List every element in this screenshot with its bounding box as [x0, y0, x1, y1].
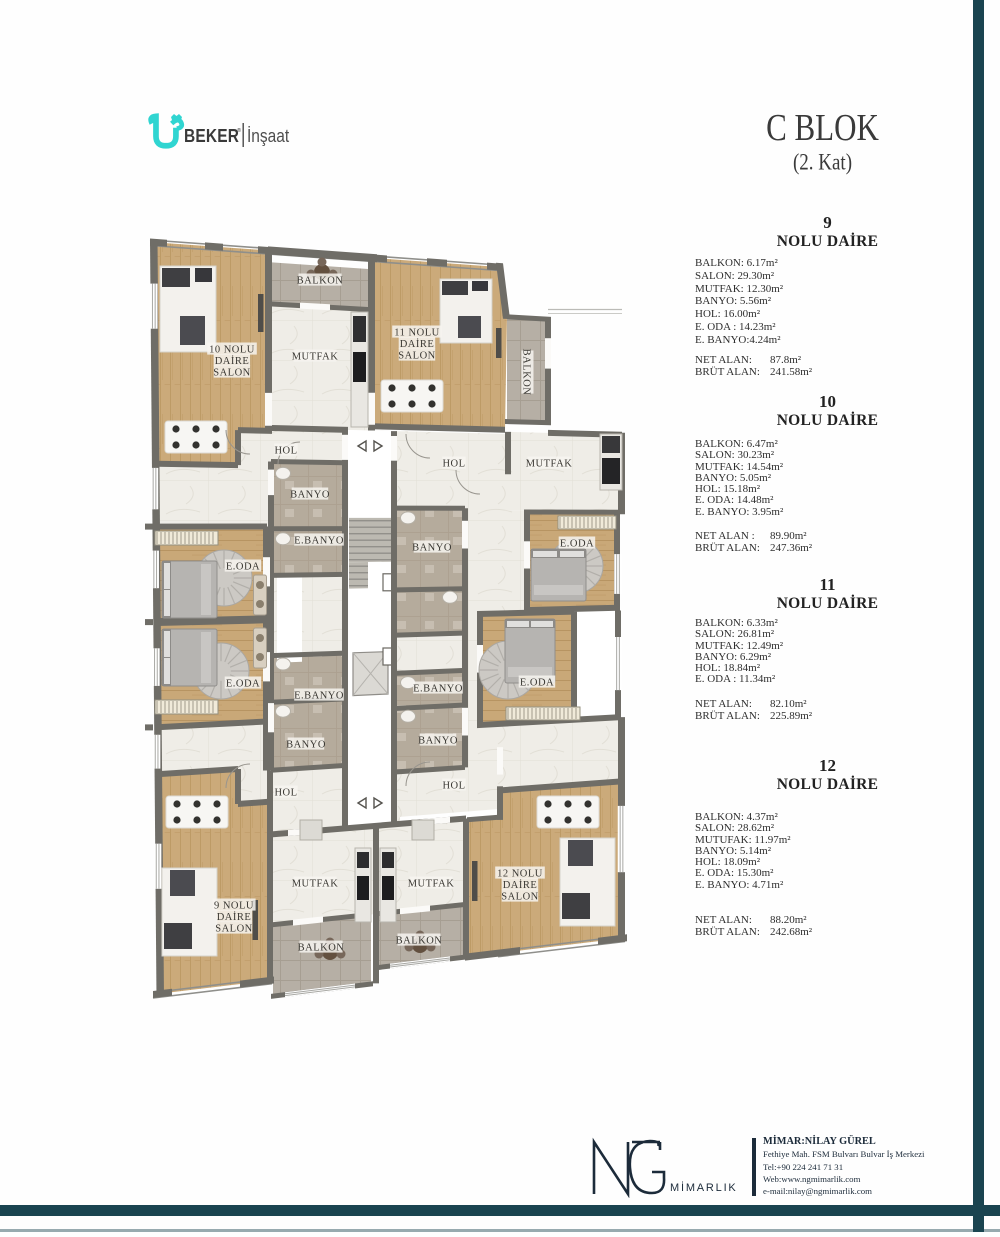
svg-text:BALKON: BALKON [298, 942, 345, 953]
svg-text:BALKON: BALKON [297, 275, 344, 286]
svg-text:DAİRE: DAİRE [215, 355, 250, 367]
svg-text:E.ODA: E.ODA [226, 678, 260, 689]
svg-text:MİMARLIK: MİMARLIK [670, 1181, 738, 1194]
svg-text:MUTFAK: MUTFAK [292, 878, 339, 889]
svg-text:SALON: SALON [398, 350, 436, 361]
svg-text:SALON: SALON [501, 891, 539, 902]
svg-text:E.BANYO: E.BANYO [294, 535, 344, 546]
svg-text:MUTFAK: MUTFAK [408, 878, 455, 889]
svg-text:BALKON: BALKON [521, 349, 532, 396]
svg-text:BANYO: BANYO [412, 542, 452, 553]
svg-text:BANYO: BANYO [290, 489, 330, 500]
svg-text:12 NOLU: 12 NOLU [497, 868, 543, 879]
svg-text:HOL: HOL [274, 445, 297, 456]
svg-text:E.ODA: E.ODA [520, 677, 554, 688]
svg-text:HOL: HOL [442, 780, 465, 791]
svg-text:E.BANYO: E.BANYO [294, 690, 344, 701]
svg-text:DAİRE: DAİRE [217, 911, 252, 923]
svg-text:E.ODA: E.ODA [560, 538, 594, 549]
svg-text:E.BANYO: E.BANYO [413, 683, 463, 694]
svg-text:BALKON: BALKON [396, 935, 443, 946]
svg-text:HOL: HOL [274, 787, 297, 798]
svg-text:BANYO: BANYO [286, 739, 326, 750]
svg-text:İnşaat: İnşaat [247, 125, 289, 147]
svg-text:BEKER: BEKER [184, 125, 239, 147]
svg-text:MUTFAK: MUTFAK [292, 351, 339, 362]
svg-text:DAİRE: DAİRE [503, 879, 538, 891]
svg-text:BANYO: BANYO [418, 735, 458, 746]
svg-text:E.ODA: E.ODA [226, 561, 260, 572]
svg-text:10 NOLU: 10 NOLU [209, 344, 255, 355]
svg-text:®: ® [237, 127, 241, 134]
svg-text:SALON: SALON [215, 923, 253, 934]
svg-text:11 NOLU: 11 NOLU [394, 327, 439, 338]
svg-text:HOL: HOL [442, 458, 465, 469]
svg-text:9 NOLU: 9 NOLU [214, 900, 254, 911]
svg-text:SALON: SALON [213, 367, 251, 378]
svg-text:DAİRE: DAİRE [400, 338, 435, 350]
svg-text:MUTFAK: MUTFAK [526, 458, 573, 469]
